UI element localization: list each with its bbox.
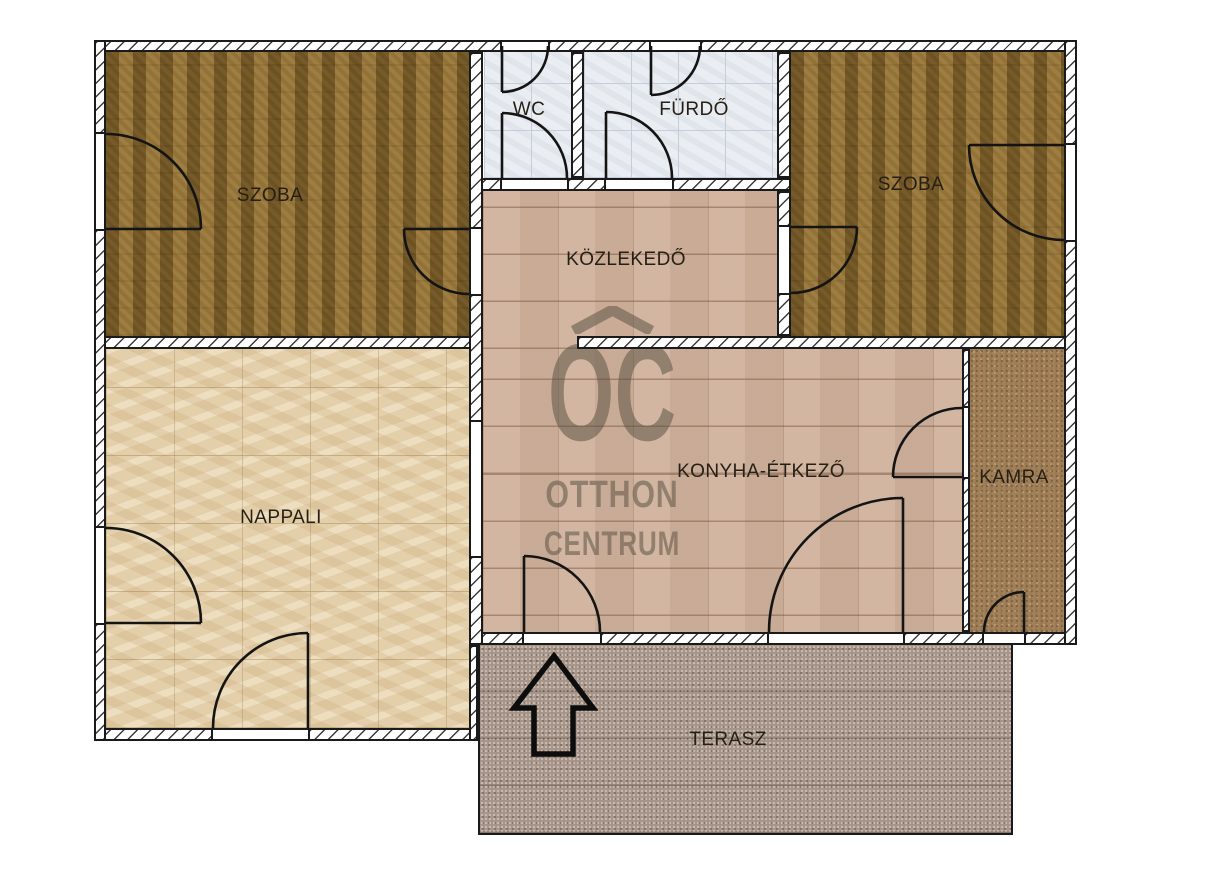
wall-opening (984, 632, 1024, 645)
wall-segment (777, 52, 791, 178)
room-label-szoba-right: SZOBA (878, 174, 944, 196)
wall-segment (94, 728, 213, 741)
wall-opening (651, 40, 700, 52)
wall-segment (571, 52, 584, 178)
room-label-terasz: TERASZ (689, 729, 766, 751)
room-label-szoba-left: SZOBA (237, 185, 303, 207)
wall-segment (962, 349, 970, 408)
room-label-kozlekedo: KÖZLEKEDŐ (566, 249, 686, 271)
wall-opening (94, 528, 106, 623)
room-label-nappali: NAPPALI (240, 507, 322, 529)
wall-segment (700, 40, 1077, 52)
wall-segment (962, 477, 970, 632)
wall-opening (777, 227, 791, 293)
room-label-wc: WC (513, 99, 545, 121)
wall-segment (469, 556, 483, 645)
wall-segment (600, 632, 769, 645)
wall-segment (777, 293, 791, 336)
wall-segment (548, 40, 651, 52)
floorplan: OC OTTHON CENTRUM SZOBA WC FÜRDŐ SZOBA K… (0, 0, 1224, 876)
wall-segment (1064, 240, 1077, 645)
room-floor-nappali (106, 349, 469, 728)
wall-opening (524, 632, 600, 645)
wall-opening (606, 178, 672, 191)
watermark-line1: OTTHON (529, 476, 695, 514)
wall-segment (94, 623, 106, 741)
wall-segment (308, 728, 478, 741)
wall-segment (469, 52, 483, 229)
wall-segment (469, 294, 483, 422)
wall-opening (94, 134, 106, 229)
wall-segment (777, 191, 791, 227)
wall-opening (1064, 145, 1077, 240)
wall-segment (94, 229, 106, 528)
wall-opening (469, 422, 483, 556)
watermark-line2: CENTRUM (532, 527, 691, 561)
wall-opening (962, 408, 970, 477)
room-label-kamra: KAMRA (979, 467, 1049, 489)
wall-segment (577, 336, 1077, 349)
room-label-konyha-etkezo: KONYHA-ÉTKEZŐ (677, 461, 845, 483)
wall-segment (903, 632, 984, 645)
wall-segment (94, 40, 502, 52)
wall-segment (94, 40, 106, 134)
wall-segment (567, 178, 606, 191)
wall-segment (1064, 40, 1077, 145)
wall-segment (672, 178, 791, 191)
room-label-furdo: FÜRDŐ (659, 99, 729, 121)
wall-opening (469, 229, 483, 294)
wall-opening (213, 728, 308, 741)
watermark-abbr: OC (548, 340, 676, 448)
wall-opening (502, 40, 548, 52)
wall-opening (769, 632, 903, 645)
wall-segment (469, 645, 478, 741)
room-floor-kamra (970, 349, 1064, 632)
wall-segment (94, 336, 483, 349)
wall-opening (502, 178, 567, 191)
